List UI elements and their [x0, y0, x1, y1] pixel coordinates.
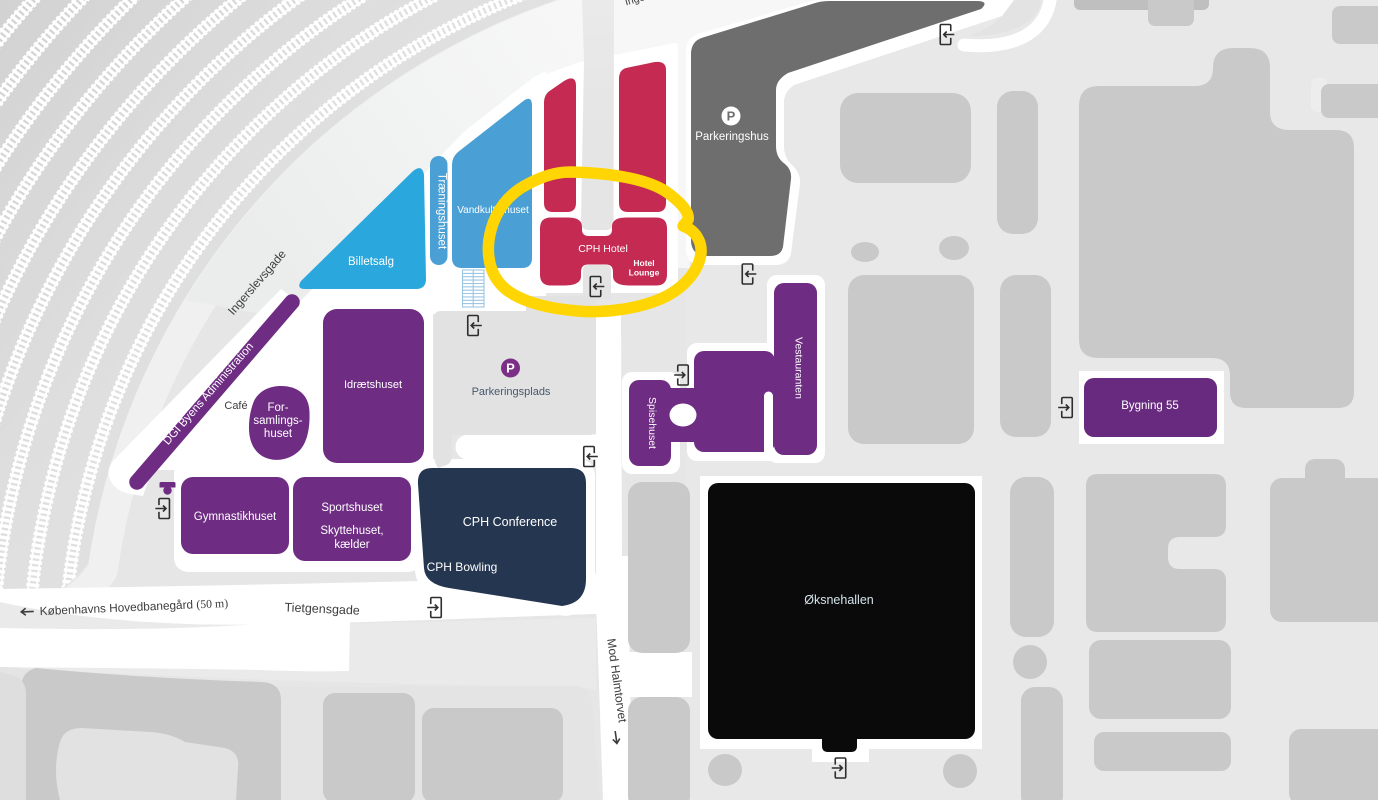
svg-text:Skyttehuset,: Skyttehuset,	[320, 525, 383, 537]
svg-text:CPH Bowling: CPH Bowling	[427, 560, 498, 574]
svg-text:Parkeringshus: Parkeringshus	[695, 131, 769, 143]
svg-text:Spisehuset: Spisehuset	[646, 397, 658, 449]
svg-text:For-: For-	[267, 402, 288, 414]
svg-text:Idrætshuset: Idrætshuset	[344, 379, 402, 391]
svg-text:Café: Café	[224, 400, 247, 412]
svg-text:samlings-: samlings-	[253, 415, 302, 427]
svg-text:P: P	[506, 361, 515, 376]
svg-text:CPH Hotel: CPH Hotel	[578, 243, 628, 255]
svg-text:Bygning 55: Bygning 55	[1121, 400, 1179, 412]
svg-text:Gymnastikhuset: Gymnastikhuset	[194, 511, 277, 523]
svg-text:Vestauranten: Vestauranten	[793, 337, 805, 399]
svg-text:Øksnehallen: Øksnehallen	[804, 593, 874, 607]
svg-text:Parkeringsplads: Parkeringsplads	[472, 386, 551, 398]
svg-text:Lounge: Lounge	[629, 268, 660, 278]
svg-text:Sportshuset: Sportshuset	[321, 502, 383, 514]
svg-text:Træningshuset: Træningshuset	[436, 173, 448, 250]
svg-text:Billetsalg: Billetsalg	[348, 256, 394, 268]
svg-text:CPH Conference: CPH Conference	[463, 515, 558, 529]
svg-text:Hotel: Hotel	[633, 258, 654, 268]
svg-text:kælder: kælder	[334, 539, 369, 551]
svg-text:P: P	[727, 109, 736, 124]
svg-text:huset: huset	[264, 428, 293, 440]
